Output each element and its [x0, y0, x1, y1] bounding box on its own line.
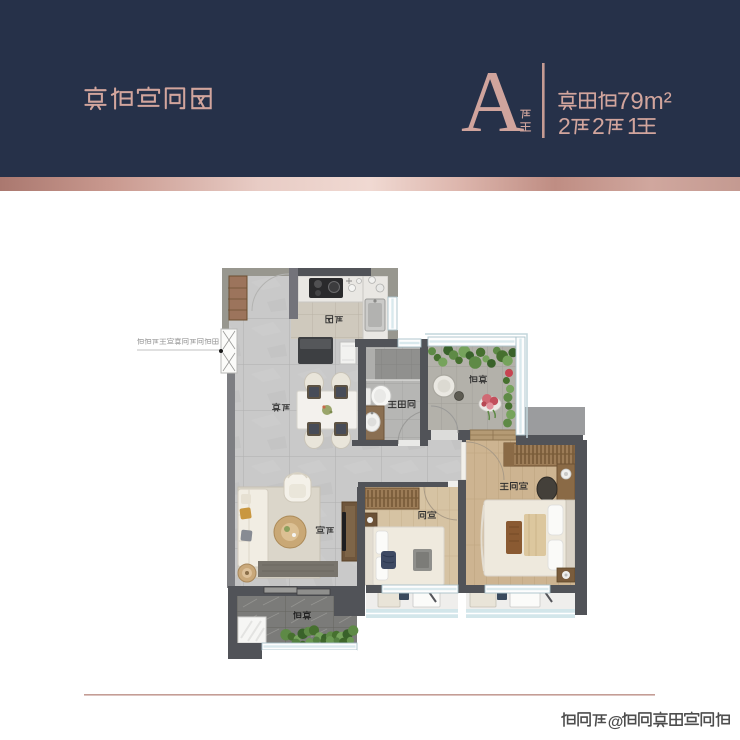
svg-text:79m²: 79m² — [617, 88, 672, 115]
svg-text:2: 2 — [558, 113, 571, 139]
svg-text:A: A — [461, 54, 525, 151]
svg-text:1: 1 — [627, 113, 640, 139]
svg-text:@: @ — [608, 714, 624, 731]
svg-text:2: 2 — [592, 113, 605, 139]
